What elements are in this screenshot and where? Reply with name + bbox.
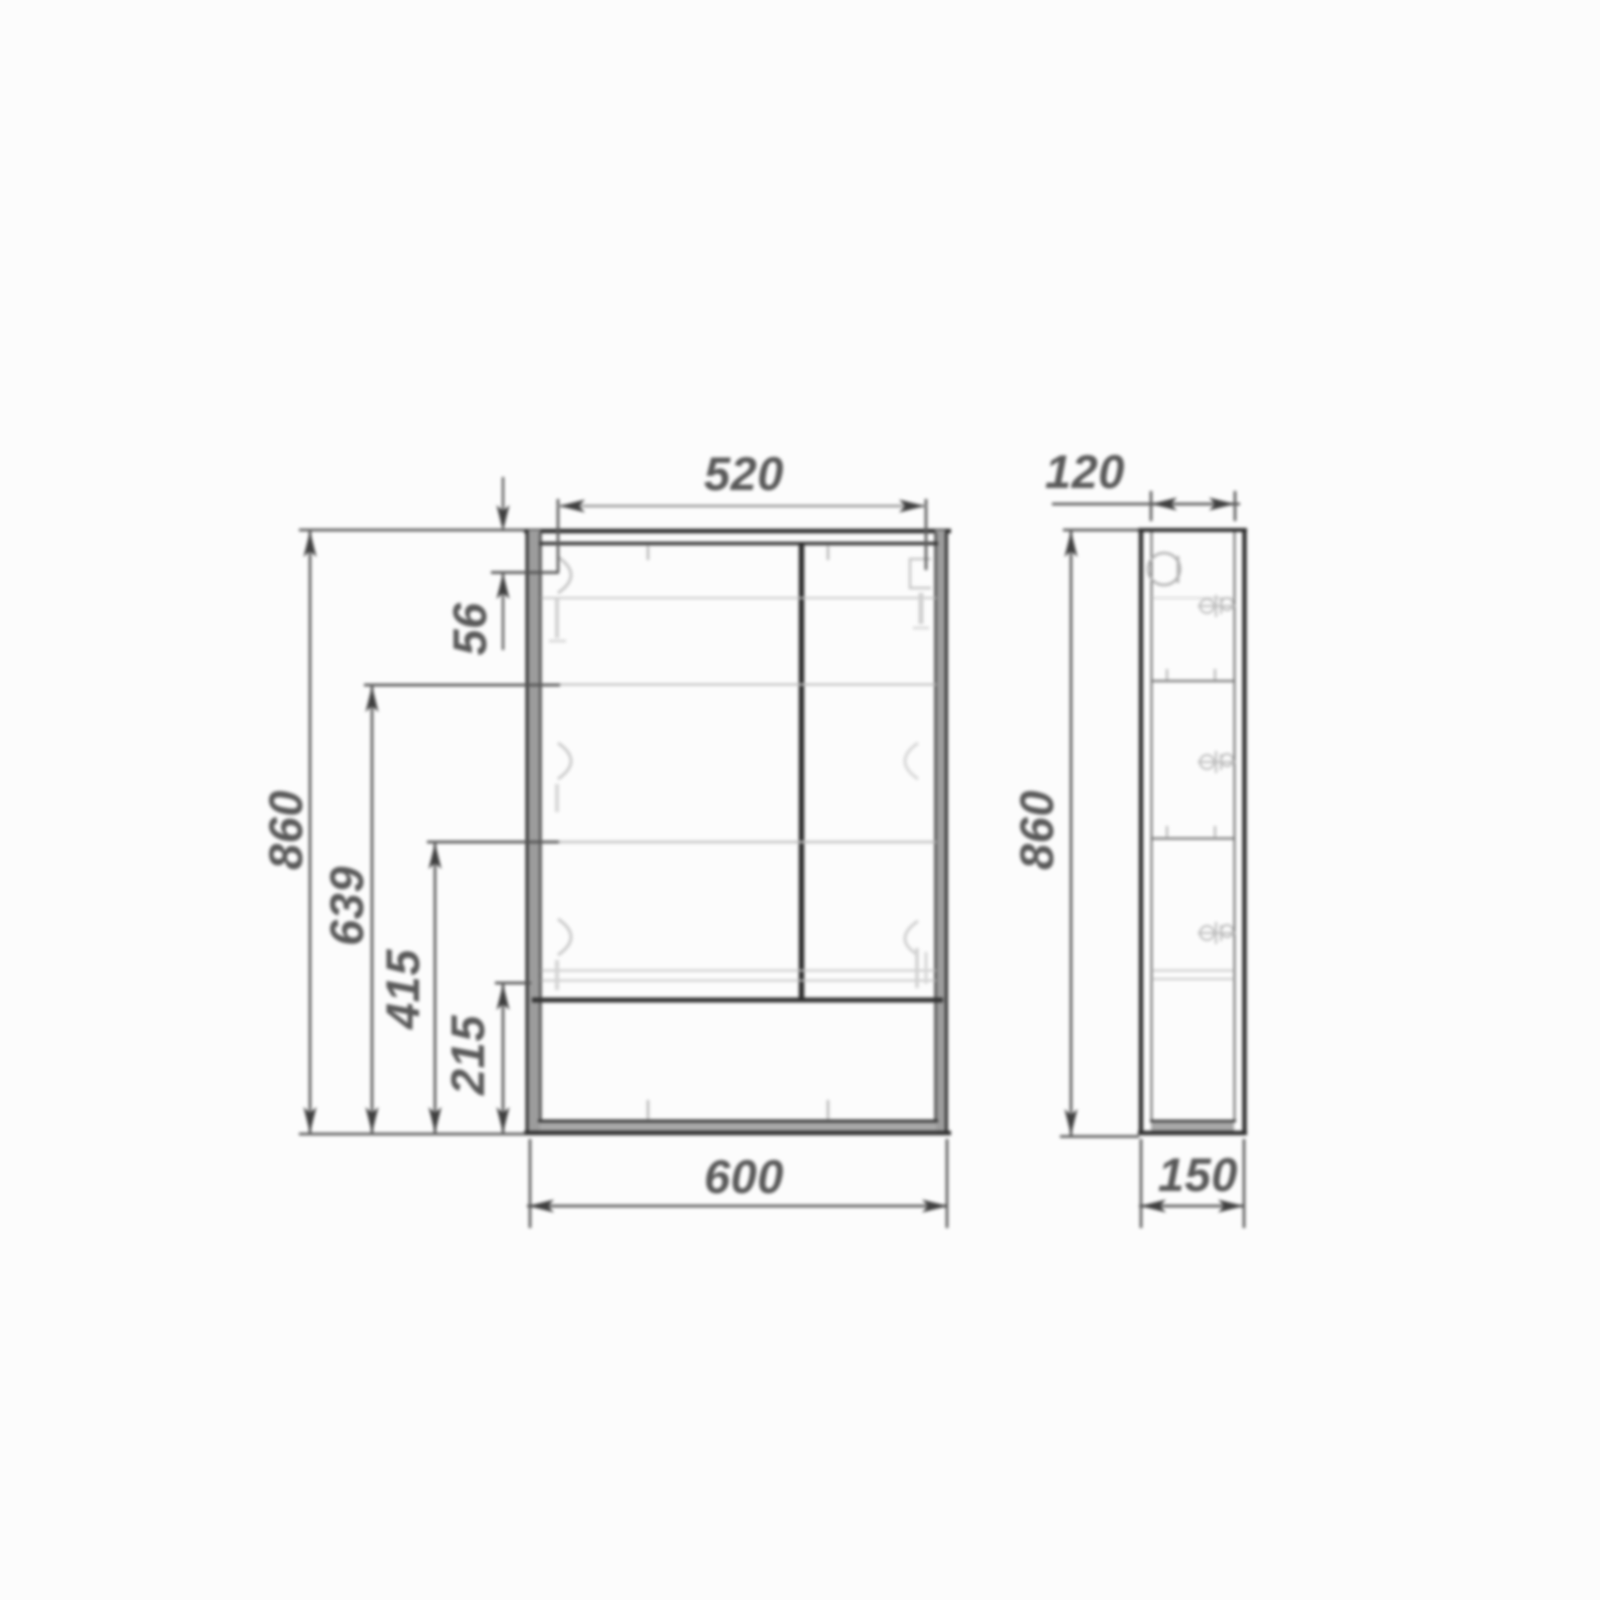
svg-text:860: 860 bbox=[1010, 790, 1063, 870]
svg-text:600: 600 bbox=[704, 1150, 784, 1203]
svg-text:120: 120 bbox=[1045, 445, 1125, 498]
svg-text:860: 860 bbox=[259, 790, 312, 870]
svg-text:639: 639 bbox=[320, 866, 373, 946]
svg-text:215: 215 bbox=[441, 1015, 494, 1096]
svg-text:56: 56 bbox=[443, 602, 496, 656]
svg-text:415: 415 bbox=[376, 949, 429, 1030]
svg-text:520: 520 bbox=[704, 447, 784, 500]
svg-text:150: 150 bbox=[1158, 1148, 1238, 1201]
